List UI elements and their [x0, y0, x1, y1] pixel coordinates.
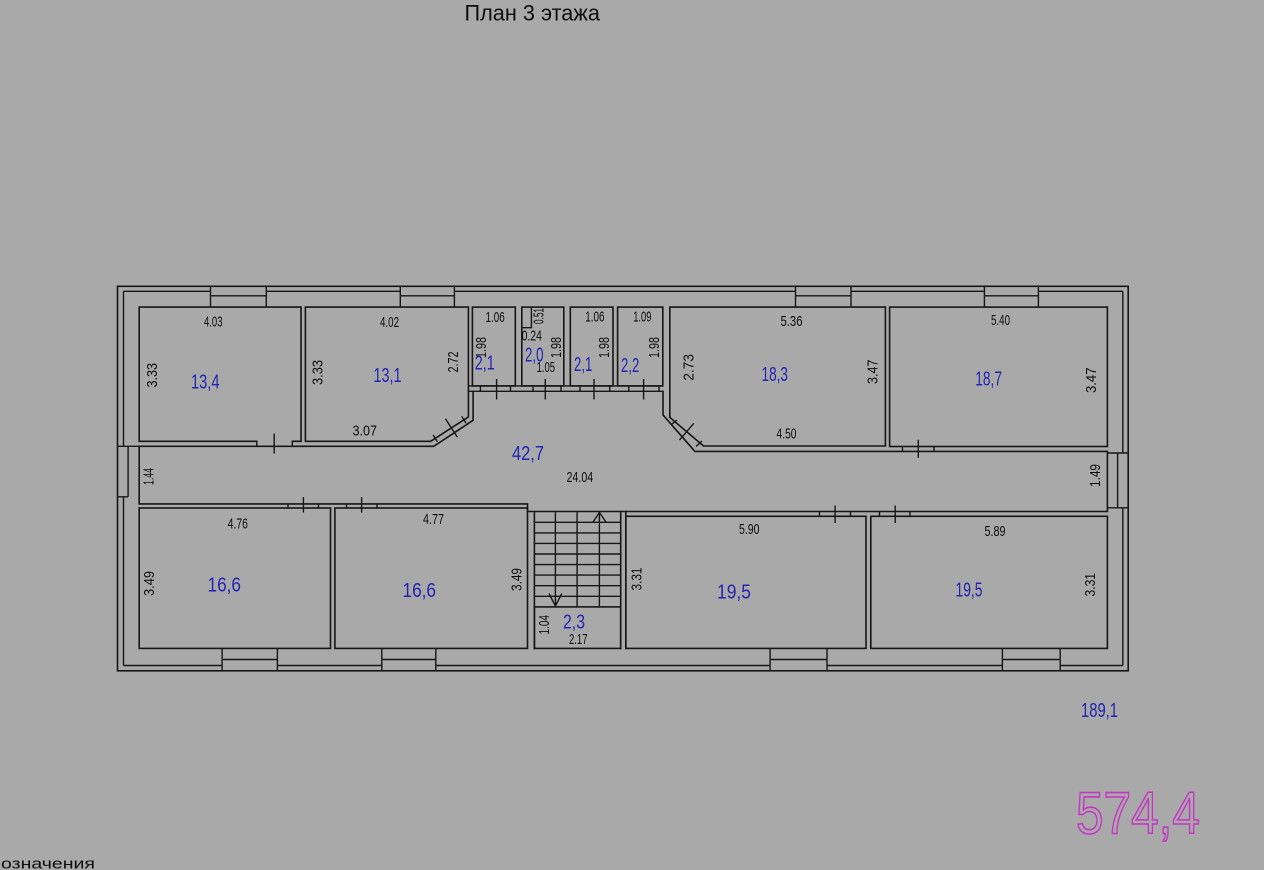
svg-text:5.89: 5.89	[985, 523, 1006, 540]
svg-text:4.50: 4.50	[777, 426, 797, 443]
svg-text:2,2: 2,2	[621, 355, 639, 377]
svg-text:18,3: 18,3	[762, 364, 789, 386]
svg-text:5.90: 5.90	[739, 521, 760, 538]
svg-text:1.98: 1.98	[548, 337, 565, 358]
svg-text:4.77: 4.77	[423, 511, 444, 528]
svg-text:1.09: 1.09	[633, 309, 651, 326]
svg-text:3.31: 3.31	[1082, 573, 1099, 597]
svg-text:2,1: 2,1	[574, 354, 592, 376]
svg-text:1.49: 1.49	[1087, 464, 1104, 487]
svg-text:1.98: 1.98	[646, 337, 663, 358]
svg-text:189,1: 189,1	[1081, 700, 1118, 722]
svg-text:План 3 этажа: План 3 этажа	[465, 1, 601, 26]
svg-text:2.72: 2.72	[445, 352, 462, 373]
svg-text:1.98: 1.98	[473, 337, 490, 358]
svg-text:3.47: 3.47	[865, 360, 882, 385]
svg-text:2.17: 2.17	[569, 631, 588, 648]
svg-text:3.47: 3.47	[1083, 368, 1100, 394]
svg-text:18,7: 18,7	[975, 369, 1002, 391]
svg-text:3.07: 3.07	[353, 423, 378, 440]
svg-text:5.40: 5.40	[991, 312, 1010, 329]
svg-text:1.04: 1.04	[536, 615, 553, 635]
svg-text:16,6: 16,6	[208, 575, 242, 597]
svg-text:0.51: 0.51	[531, 308, 548, 324]
svg-text:3.33: 3.33	[310, 360, 327, 385]
svg-text:5.36: 5.36	[781, 313, 803, 330]
svg-text:574,4: 574,4	[1076, 780, 1200, 847]
svg-text:16,6: 16,6	[403, 580, 437, 602]
svg-text:1.44: 1.44	[141, 468, 158, 485]
svg-text:1.98: 1.98	[596, 337, 613, 358]
svg-text:означения: означения	[1, 856, 95, 870]
svg-text:3.49: 3.49	[509, 568, 526, 591]
svg-text:42,7: 42,7	[512, 443, 544, 465]
svg-text:13,4: 13,4	[191, 372, 220, 394]
svg-text:1.06: 1.06	[585, 309, 604, 326]
svg-text:1.05: 1.05	[537, 359, 555, 376]
svg-text:3.31: 3.31	[629, 568, 646, 591]
svg-text:2.73: 2.73	[681, 354, 698, 381]
svg-text:19,5: 19,5	[956, 580, 983, 602]
svg-text:0.24: 0.24	[522, 328, 542, 345]
svg-text:19,5: 19,5	[717, 582, 751, 604]
svg-text:3.33: 3.33	[144, 363, 161, 388]
svg-text:24.04: 24.04	[567, 469, 594, 486]
svg-text:13,1: 13,1	[374, 365, 402, 387]
svg-text:3.49: 3.49	[141, 571, 158, 596]
svg-text:1.06: 1.06	[486, 309, 505, 326]
svg-text:4.02: 4.02	[380, 314, 399, 331]
svg-text:4.03: 4.03	[204, 314, 223, 331]
svg-text:4.76: 4.76	[228, 516, 248, 533]
